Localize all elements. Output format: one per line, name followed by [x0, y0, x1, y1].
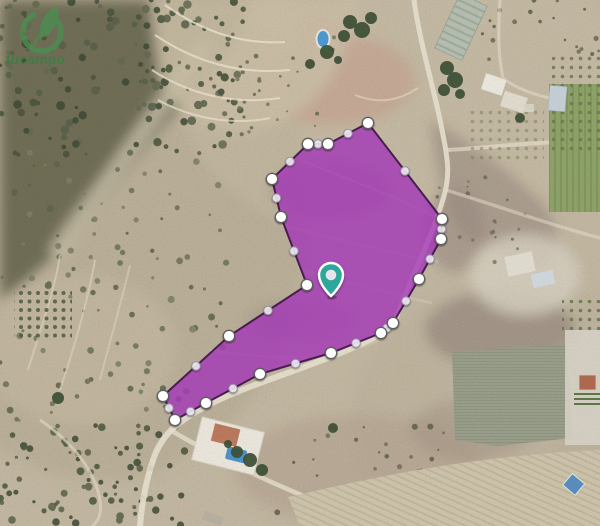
vertex-marker[interactable] [387, 317, 398, 328]
satellite-imagery [0, 0, 600, 526]
midpoint-marker[interactable] [286, 157, 295, 166]
midpoint-marker[interactable] [264, 306, 273, 315]
vertex-marker[interactable] [322, 138, 333, 149]
map-canvas[interactable]: tucampo [0, 0, 600, 526]
midpoint-marker[interactable] [402, 297, 411, 306]
vertex-marker[interactable] [435, 233, 446, 244]
vertex-marker[interactable] [157, 390, 168, 401]
midpoint-marker[interactable] [426, 255, 435, 264]
pin-hole [326, 270, 337, 281]
midpoint-marker[interactable] [291, 359, 300, 368]
vertex-marker[interactable] [436, 213, 447, 224]
midpoint-marker[interactable] [272, 194, 281, 203]
midpoint-marker[interactable] [229, 384, 238, 393]
vertex-marker[interactable] [413, 273, 424, 284]
midpoint-marker[interactable] [401, 167, 410, 176]
vertex-marker[interactable] [200, 397, 211, 408]
vertex-marker[interactable] [362, 117, 373, 128]
midpoint-marker[interactable] [314, 140, 323, 149]
vertex-marker[interactable] [302, 138, 313, 149]
midpoint-marker[interactable] [165, 404, 174, 413]
vertex-marker[interactable] [301, 279, 312, 290]
midpoint-marker[interactable] [352, 339, 361, 348]
vertex-marker[interactable] [266, 173, 277, 184]
midpoint-marker[interactable] [192, 362, 201, 371]
vertex-marker[interactable] [223, 330, 234, 341]
vertex-marker[interactable] [169, 414, 180, 425]
midpoint-marker[interactable] [344, 129, 353, 138]
midpoint-marker[interactable] [437, 225, 446, 234]
midpoint-marker[interactable] [186, 407, 195, 416]
vertex-marker[interactable] [275, 211, 286, 222]
midpoint-marker[interactable] [290, 247, 299, 256]
vertex-marker[interactable] [325, 347, 336, 358]
vertex-marker[interactable] [375, 327, 386, 338]
vertex-marker[interactable] [254, 368, 265, 379]
